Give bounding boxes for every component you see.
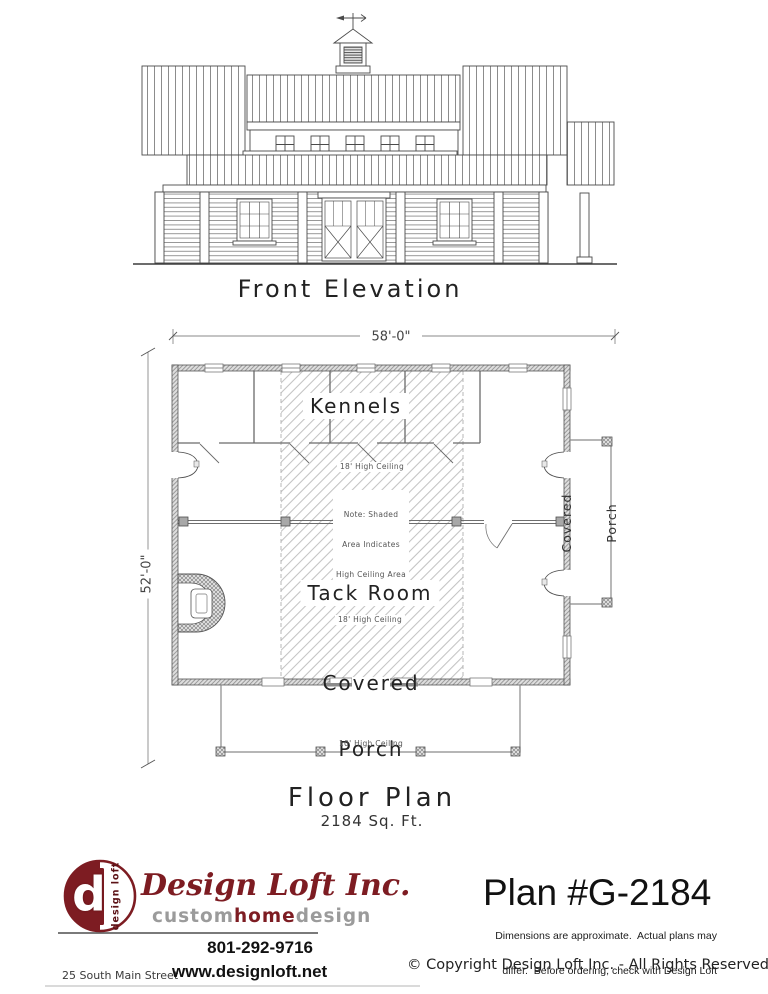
elevation-window-left xyxy=(233,199,276,245)
cupola xyxy=(334,29,372,73)
bottom-porch-label: Covered Porch xyxy=(322,628,419,804)
website-url: www.designloft.net xyxy=(172,962,313,982)
dormer-trim xyxy=(247,122,460,130)
note-line2: Area Indicates xyxy=(336,540,406,550)
plan-sheet: Front Elevation 58'-0" 52'-0" Kennels 18… xyxy=(0,0,768,994)
wash-fixture xyxy=(178,574,225,632)
tagline-custom: custom xyxy=(152,906,234,927)
fascia xyxy=(163,185,546,192)
disclaimer-text: Dimensions are approximate. Actual plans… xyxy=(462,908,717,994)
roof-wing-right xyxy=(567,122,614,185)
roof-lower-band xyxy=(187,155,547,185)
kennels-label: Kennels xyxy=(303,393,409,419)
elevation-porch-post xyxy=(577,193,592,263)
roof-panel-right xyxy=(463,66,567,155)
elevation-window-right xyxy=(433,199,476,245)
logo-company-name: Design Loft Inc. xyxy=(141,868,411,903)
logo-vertical-text: design loft xyxy=(111,862,122,930)
bottom-porch-ceiling-label: 10' High Ceiling xyxy=(336,739,406,749)
tack-room-ceiling-label: 18' High Ceiling xyxy=(335,615,405,625)
tagline-design: design xyxy=(296,906,372,927)
weathervane-icon xyxy=(336,13,366,29)
note-line1: Note: Shaded xyxy=(336,510,406,520)
right-porch-line2: Porch xyxy=(604,494,619,553)
right-porch-line1: Covered xyxy=(559,494,574,553)
front-elevation-drawing xyxy=(133,13,617,264)
logo-tagline: customhomedesign xyxy=(152,906,371,927)
bottom-porch-line1: Covered xyxy=(322,672,419,694)
right-porch-label: Covered Porch xyxy=(529,494,649,553)
logo-monogram: d xyxy=(72,868,106,923)
dim-width-label: 58'-0" xyxy=(366,330,415,345)
copyright-notice: © Copyright Design Loft Inc. - All Right… xyxy=(407,957,768,973)
roof-panel-center xyxy=(247,75,460,122)
phone-number: 801-292-9716 xyxy=(195,938,313,958)
floor-plan-area: 2184 Sq. Ft. xyxy=(321,812,424,830)
floor-plan-title: Floor Plan xyxy=(288,783,456,813)
roof-panel-left xyxy=(142,66,245,155)
dim-height-label: 52'-0" xyxy=(140,549,155,598)
front-elevation-title: Front Elevation xyxy=(238,275,463,303)
kennels-ceiling-label: 18' High Ceiling xyxy=(337,462,407,472)
note-line3: High Ceiling Area xyxy=(336,570,406,580)
disclaimer-line1: Dimensions are approximate. Actual plans… xyxy=(462,931,717,943)
barn-doors xyxy=(318,192,390,261)
tack-room-label: Tack Room xyxy=(300,580,439,606)
tagline-home: home xyxy=(234,906,296,927)
